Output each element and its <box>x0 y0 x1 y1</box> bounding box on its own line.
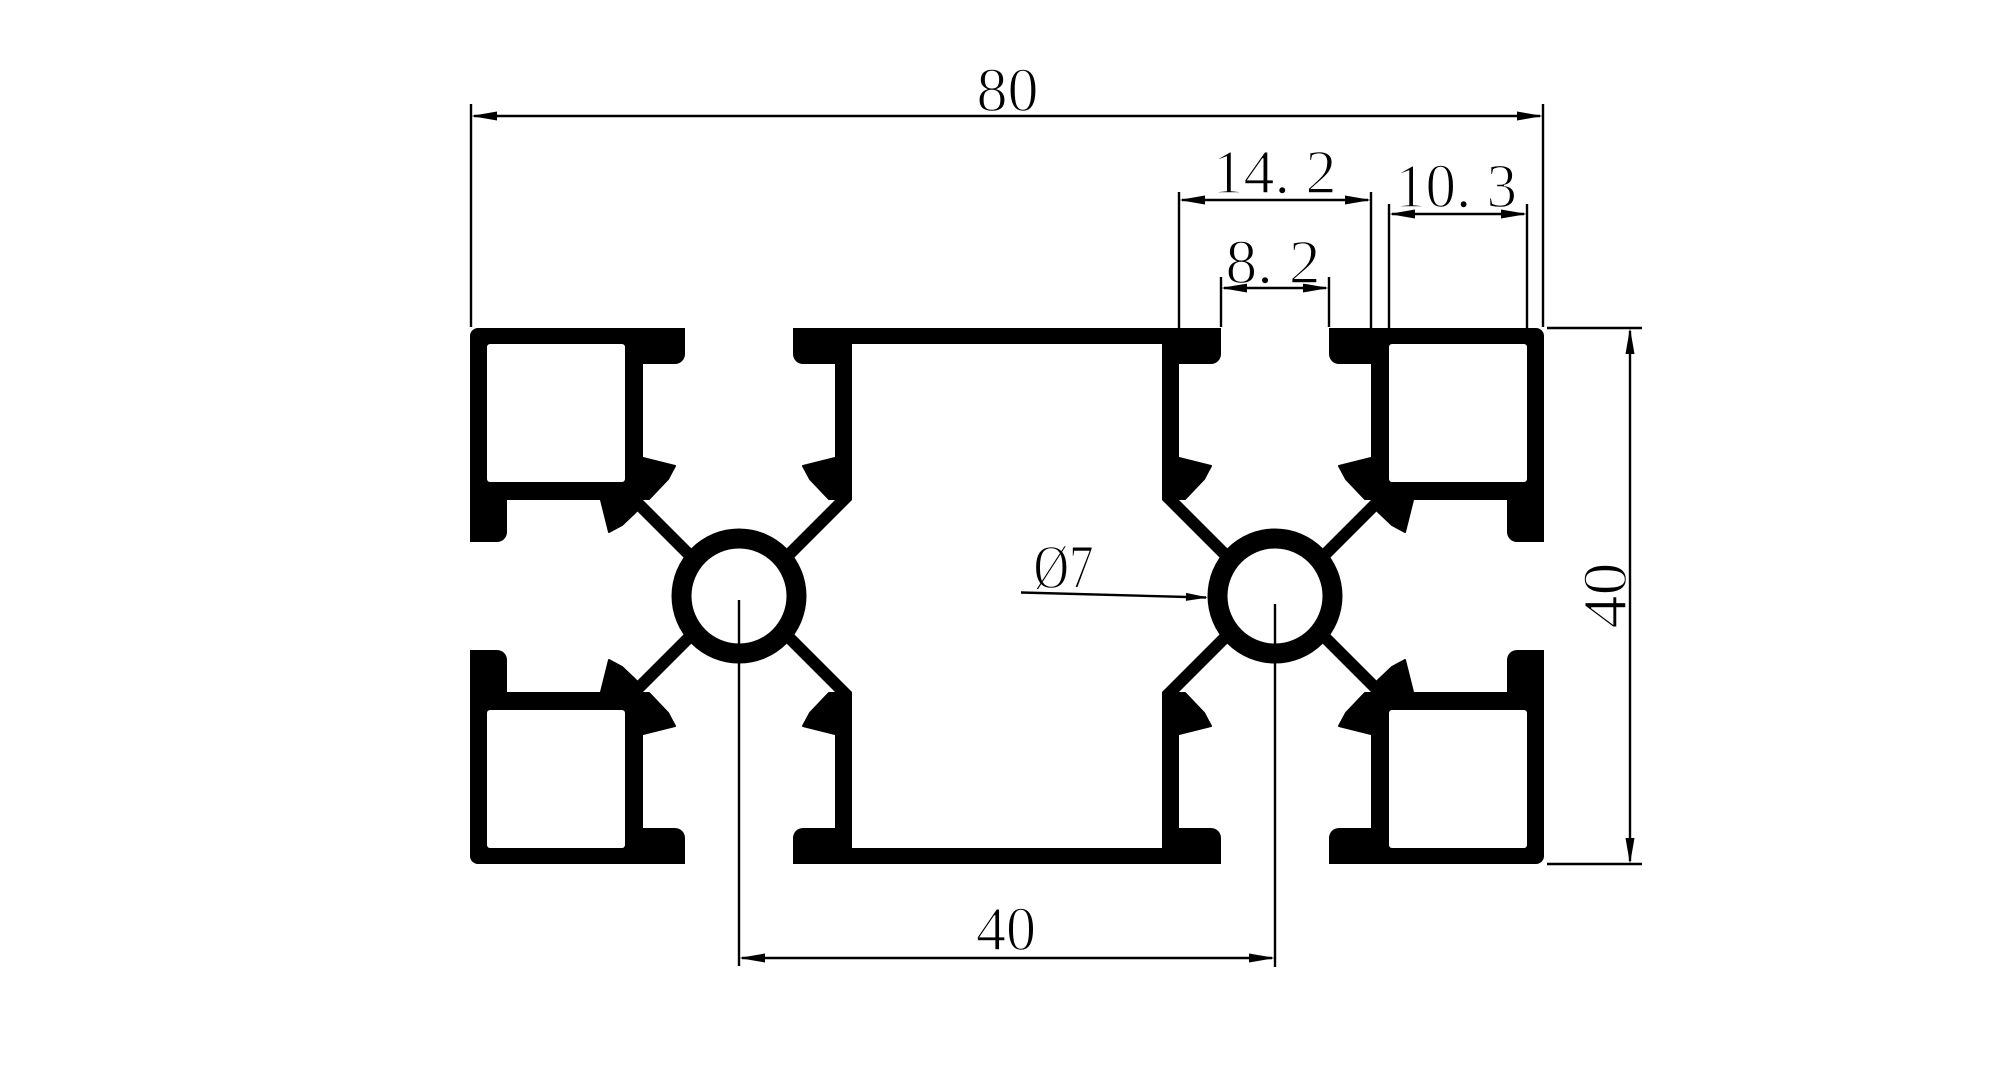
svg-text:Ø7: Ø7 <box>1034 534 1094 602</box>
svg-text:80: 80 <box>977 57 1039 125</box>
svg-text:10. 3: 10. 3 <box>1395 153 1517 221</box>
svg-text:40: 40 <box>1572 563 1640 629</box>
svg-text:8. 2: 8. 2 <box>1226 229 1321 297</box>
svg-text:14. 2: 14. 2 <box>1213 139 1337 207</box>
svg-text:40: 40 <box>976 896 1036 964</box>
